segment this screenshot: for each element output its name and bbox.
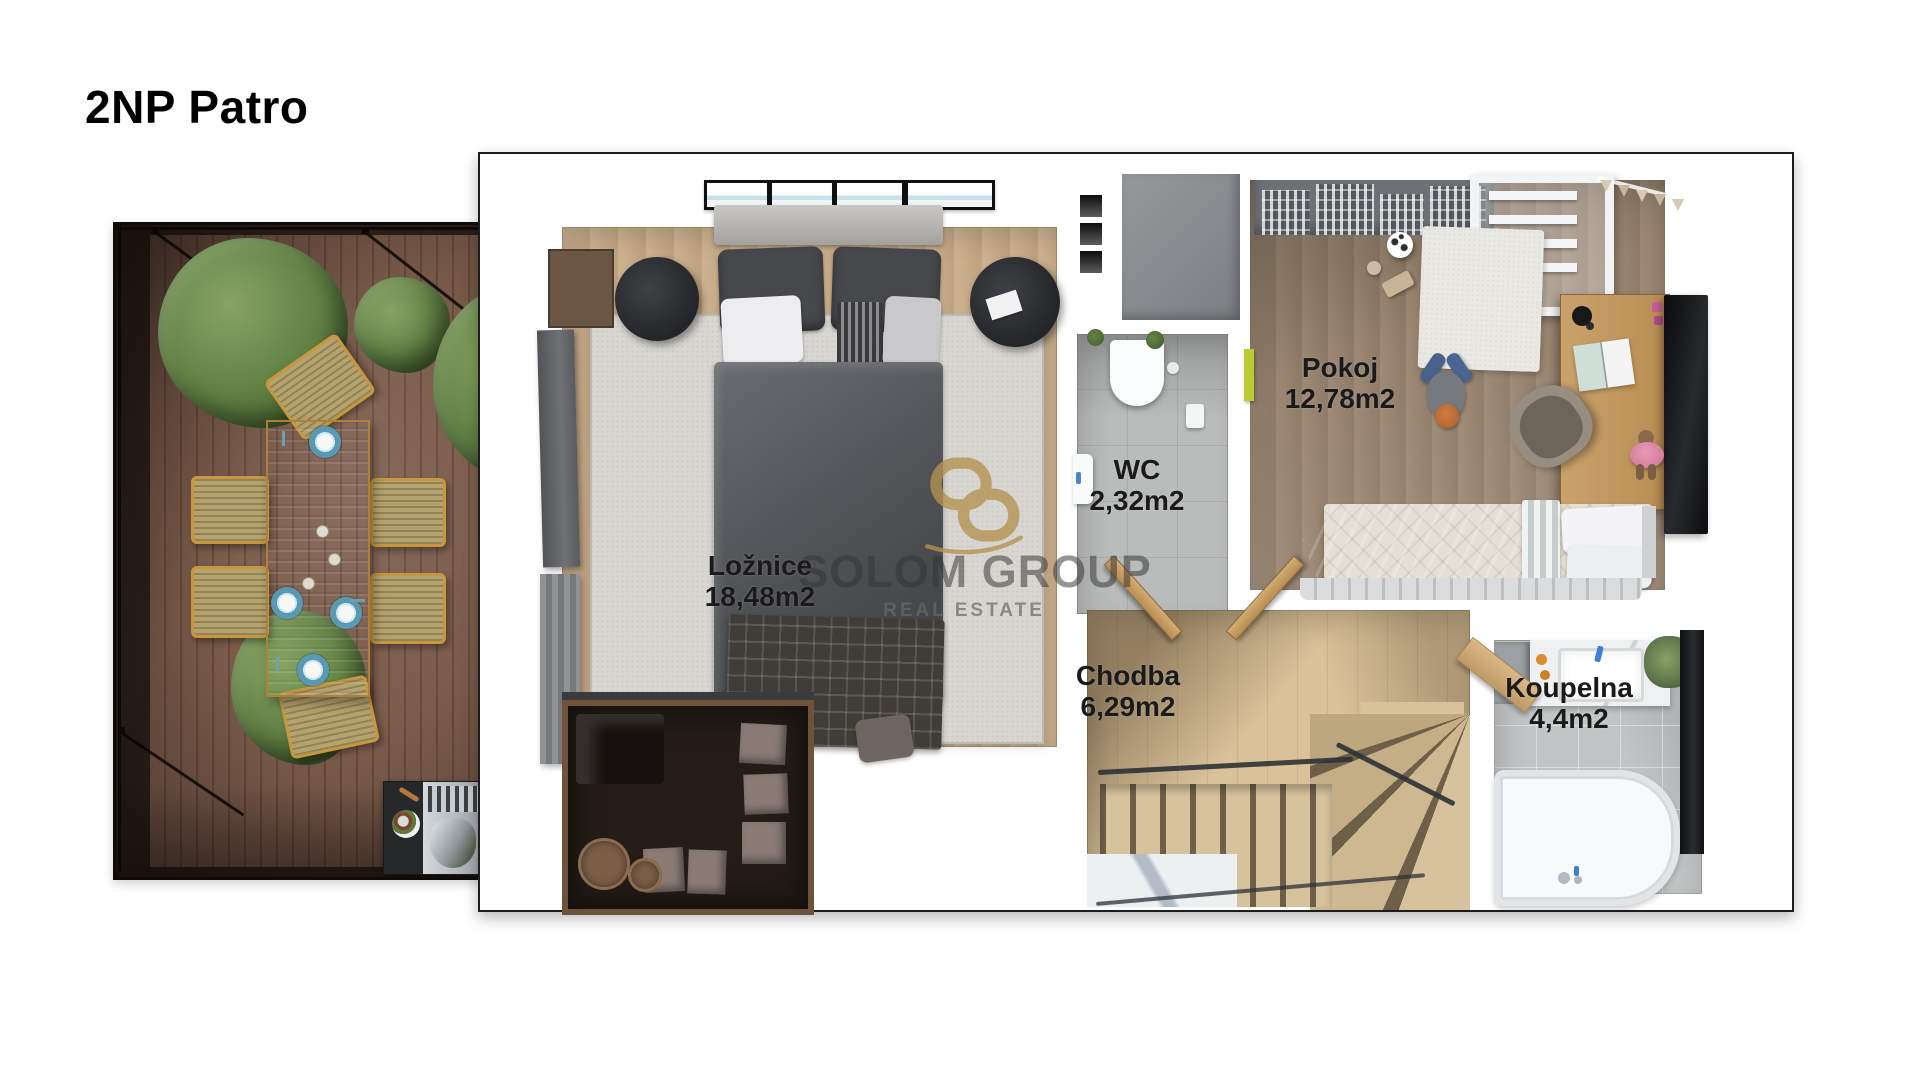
bed-pillow-white: [720, 295, 803, 366]
open-book: [1573, 338, 1635, 391]
bed-cushion-striped: [837, 302, 883, 370]
railing-post: [118, 727, 125, 734]
page-title: 2NP Patro: [85, 80, 309, 134]
grill-grate: [428, 786, 478, 812]
tub-faucet: [1558, 872, 1570, 884]
glass: [328, 553, 341, 566]
kids-bed-frame: [1642, 506, 1656, 578]
storage-box: [742, 822, 786, 864]
vent-window: [1080, 223, 1102, 245]
skyline-building: [1316, 184, 1374, 235]
tub-faucet-handle: [1574, 866, 1579, 876]
small-plant: [1087, 329, 1104, 346]
skyline-building: [1262, 190, 1310, 235]
small-plant: [1146, 331, 1164, 349]
storage-box: [743, 773, 788, 815]
bunting-flag: [1618, 185, 1630, 197]
ladder-rung: [1489, 215, 1577, 224]
ladder-rung: [1489, 191, 1577, 200]
walk-in-closet: [562, 692, 814, 915]
room-area: 12,78m2: [1230, 383, 1450, 414]
flush-button: [1167, 362, 1179, 374]
bed-headboard: [714, 205, 943, 245]
terrace-railing: [118, 225, 121, 871]
toilet-paper-holder: [1186, 404, 1204, 428]
doll-dress: [1630, 442, 1664, 468]
storage-box: [739, 723, 787, 765]
floor-cushion: [854, 713, 914, 763]
rattan-basket: [628, 858, 662, 892]
striped-throw: [1522, 500, 1560, 590]
plate: [271, 587, 303, 619]
dining-chair: [370, 478, 446, 547]
grill-hood: [430, 818, 476, 868]
room-area: 2,32m2: [1027, 485, 1247, 516]
soccer-ball: [1387, 232, 1413, 258]
floorplan: SOLOM GROUP REAL ESTATE Ložnice 18,48m2 …: [478, 152, 1794, 912]
utility-shaft: [1122, 174, 1240, 320]
terrace: [113, 222, 521, 880]
bedroom-dresser: [548, 249, 614, 328]
bunting-flag: [1636, 190, 1648, 202]
bunting-flag: [1672, 199, 1684, 211]
tv-panel: [1664, 295, 1708, 534]
small-ball: [1367, 261, 1381, 275]
doll-leg: [1648, 464, 1656, 480]
dining-chair: [191, 566, 269, 638]
desk-lamp: [1572, 306, 1592, 326]
room-name: Koupelna: [1459, 672, 1679, 703]
plate: [309, 426, 341, 458]
vent-window: [1080, 251, 1102, 273]
glass: [316, 525, 329, 538]
room-area: 6,29m2: [1018, 691, 1238, 722]
doll-leg: [1636, 464, 1644, 480]
room-name: Chodba: [1018, 660, 1238, 691]
room-label-chodba: Chodba 6,29m2: [1018, 660, 1238, 722]
bbq-grill: [383, 781, 483, 875]
room-name: Ložnice: [650, 550, 870, 581]
cutlery: [282, 431, 285, 446]
vent-window: [1080, 195, 1102, 217]
storage-box: [687, 849, 727, 894]
fruit-bowl: [1536, 654, 1547, 665]
rattan-basket: [578, 838, 630, 890]
radiator-panel: [1680, 630, 1704, 854]
desk-accessory: [1654, 316, 1663, 325]
plate: [297, 654, 329, 686]
railing-post: [152, 227, 159, 234]
salad-bowl: [392, 810, 420, 838]
watermark-subtitle: REAL ESTATE: [864, 600, 1064, 622]
floorplan-page: 2NP Patro: [0, 0, 1920, 1080]
room-name: WC: [1027, 454, 1247, 485]
glass: [302, 577, 315, 590]
hanging-clothes: [576, 714, 664, 784]
bunting-flag: [1600, 180, 1612, 192]
railing-post: [362, 227, 369, 234]
dining-chair: [191, 476, 269, 544]
tv-wardrobe-panel: [537, 330, 580, 568]
room-label-koupelna: Koupelna 4,4m2: [1459, 672, 1679, 734]
room-label-pokoj: Pokoj 12,78m2: [1230, 352, 1450, 414]
room-label-wc: WC 2,32m2: [1027, 454, 1247, 516]
bathtub: [1494, 770, 1680, 906]
nightstand: [615, 257, 699, 341]
dining-chair: [370, 573, 446, 644]
kids-bed-frame: [1300, 578, 1642, 600]
wooden-spoon: [398, 787, 419, 803]
pokoj-rug: [1418, 226, 1545, 372]
room-name: Pokoj: [1230, 352, 1450, 383]
room-label-loznice: Ložnice 18,48m2: [650, 550, 870, 612]
skyline-building: [1380, 194, 1424, 235]
terrace-railing: [116, 227, 518, 230]
kids-bed-blanket: [1302, 504, 1527, 586]
bed-pillow-gray: [882, 296, 942, 369]
bunting-flag: [1654, 194, 1666, 206]
room-area: 4,4m2: [1459, 703, 1679, 734]
watermark-logo: [922, 454, 1026, 558]
room-area: 18,48m2: [650, 581, 870, 612]
desk-accessory: [1652, 302, 1662, 312]
toilet: [1110, 340, 1164, 406]
cutlery: [350, 599, 365, 602]
cutlery: [276, 657, 279, 672]
